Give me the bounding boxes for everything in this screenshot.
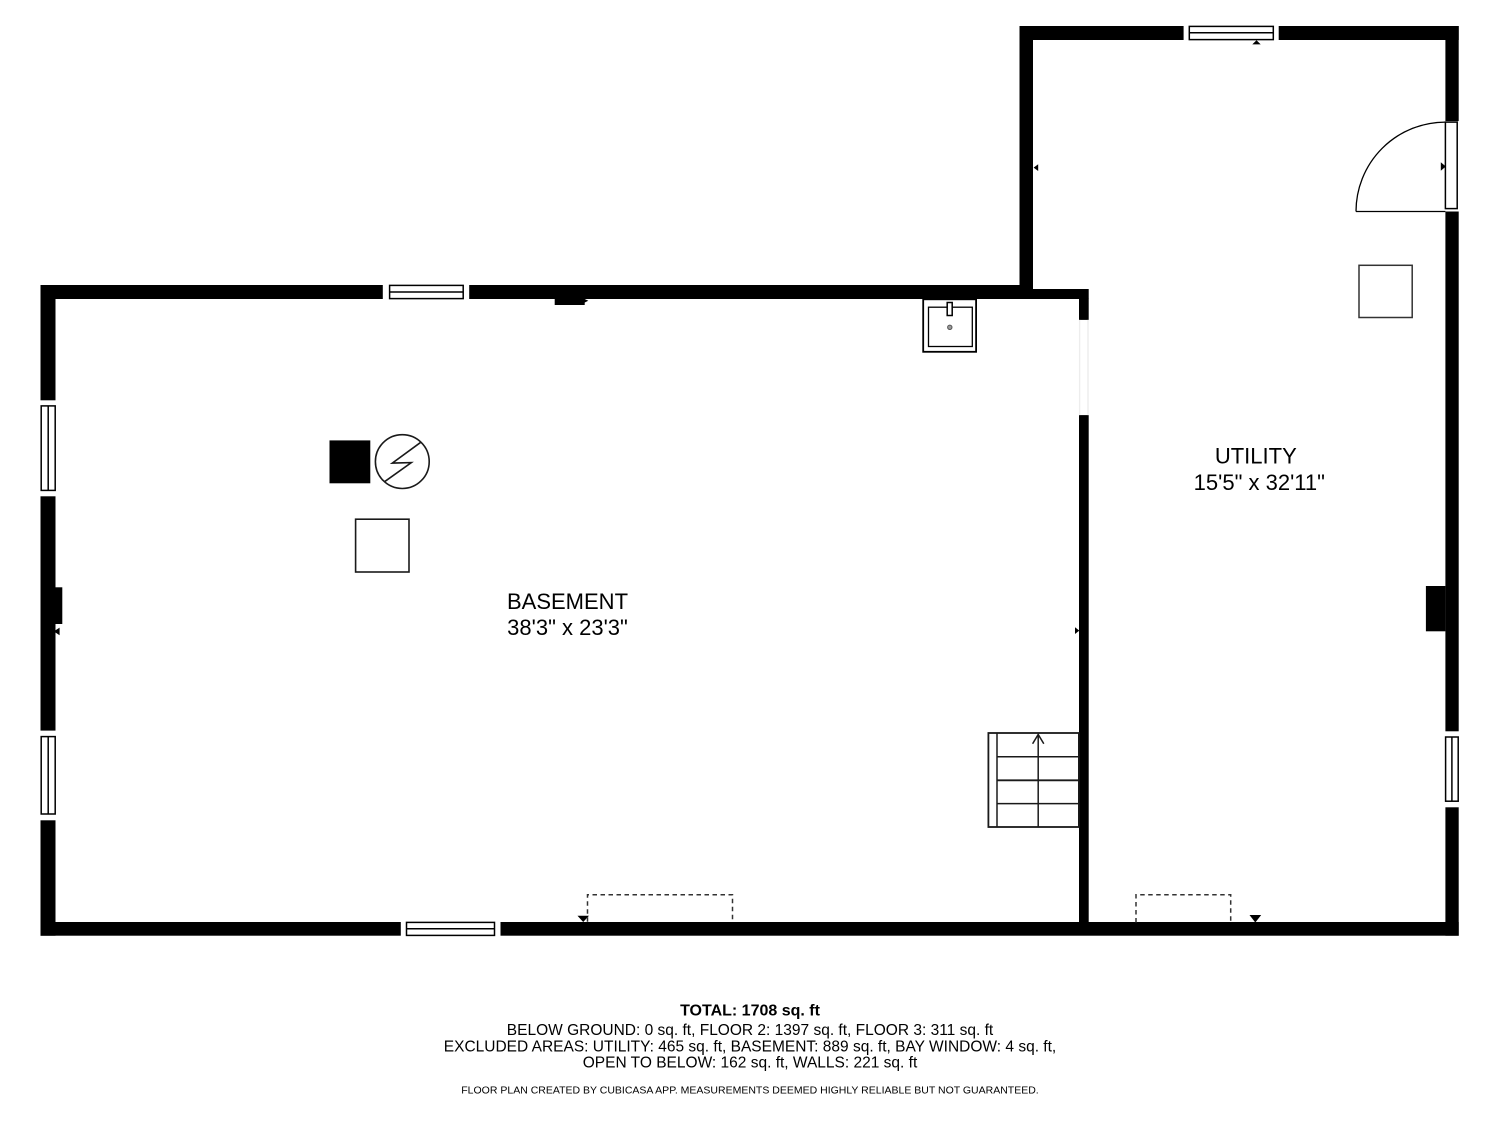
svg-text:EXCLUDED AREAS: UTILITY: 465 s: EXCLUDED AREAS: UTILITY: 465 sq. ft, BAS… — [444, 1039, 1056, 1056]
svg-text:FLOOR PLAN CREATED BY CUBICASA: FLOOR PLAN CREATED BY CUBICASA APP. MEAS… — [461, 1085, 1038, 1097]
svg-text:TOTAL: 1708 sq. ft: TOTAL: 1708 sq. ft — [680, 1003, 821, 1020]
svg-text:BELOW GROUND: 0 sq. ft, FLOOR: BELOW GROUND: 0 sq. ft, FLOOR 2: 1397 sq… — [507, 1022, 994, 1039]
svg-text:38'3" x 23'3": 38'3" x 23'3" — [507, 615, 628, 640]
svg-text:BASEMENT: BASEMENT — [507, 589, 628, 614]
svg-text:15'5" x 32'11": 15'5" x 32'11" — [1194, 470, 1325, 495]
svg-text:OPEN TO BELOW: 162 sq. ft, WAL: OPEN TO BELOW: 162 sq. ft, WALLS: 221 sq… — [583, 1055, 918, 1072]
svg-text:UTILITY: UTILITY — [1215, 443, 1297, 468]
